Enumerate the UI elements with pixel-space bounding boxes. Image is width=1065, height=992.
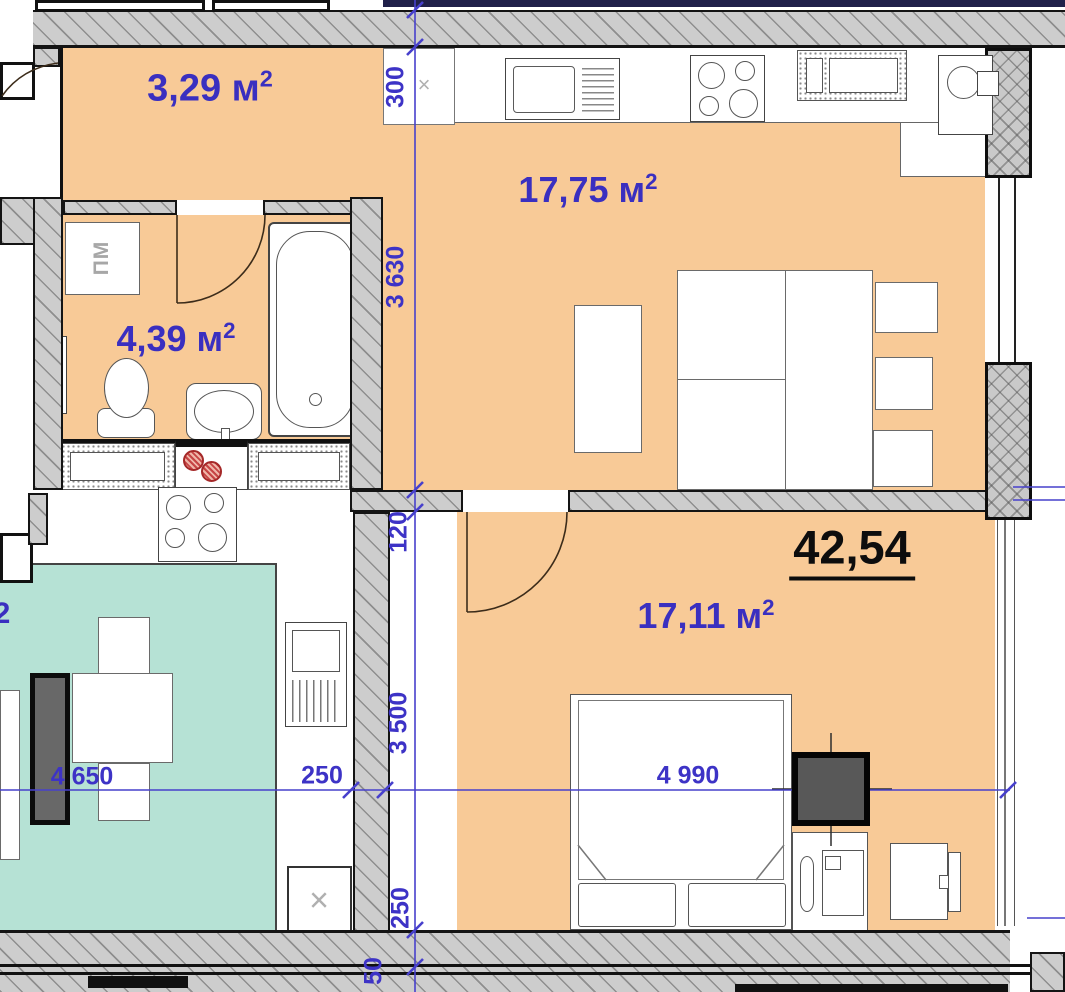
bed-pillow xyxy=(688,883,786,927)
living-bedroom-wall-left xyxy=(350,490,463,512)
coffee-table xyxy=(574,305,642,453)
neighbor-stove-burner xyxy=(165,528,185,548)
floorplan-canvas: 3,29 м2 17,75 м2 4,39 м2 17,11 м2 2 42,5… xyxy=(0,0,1065,992)
sofa-pillow xyxy=(875,282,938,333)
neighbor-hob-burner xyxy=(201,461,222,482)
bathroom-left-wall xyxy=(33,197,63,490)
desk-chair-back xyxy=(948,852,961,912)
sofa-bed-mattress xyxy=(785,270,873,490)
right-wall-pier-mid xyxy=(985,362,1032,520)
stove-burner xyxy=(735,61,755,81)
kitchen-sink-drainer xyxy=(582,68,614,114)
sofa-bed-cushion xyxy=(677,270,787,381)
kitchen-fridge-inner xyxy=(806,58,823,93)
kitchen-fridge-inner xyxy=(829,58,898,93)
washing-machine-label: ПМ xyxy=(90,241,114,276)
left-wall-stub xyxy=(33,47,60,67)
bottom-black-bar xyxy=(735,984,1008,992)
bathroom-sink-basin xyxy=(194,390,254,433)
neighbor-partial-label: 2 xyxy=(0,597,10,631)
dim-50: 50 xyxy=(360,957,389,985)
neighbor-furniture xyxy=(0,690,20,860)
dark-cabinet xyxy=(30,673,70,825)
dim-250-h: 250 xyxy=(301,762,343,791)
top-exterior-wall xyxy=(33,10,1065,48)
neighbor-stove-burner xyxy=(204,493,224,513)
neighbor-counter-inner xyxy=(70,452,165,481)
corridor-door-louvers xyxy=(292,680,340,722)
dim-4650: 4 650 xyxy=(51,763,114,792)
ventilation-shaft xyxy=(792,752,870,826)
neighbor-stove-burner xyxy=(198,523,227,552)
bathroom-right-wall xyxy=(350,197,383,490)
neighbor-stove-burner xyxy=(166,495,191,520)
bottom-double-line xyxy=(0,972,1065,975)
shaft-mark: × xyxy=(309,882,329,921)
sofa-bed-cushion xyxy=(677,379,787,490)
stove-burner xyxy=(699,96,719,116)
bedroom-area-label: 17,11 м2 xyxy=(637,595,774,637)
bedroom-window-inner-line xyxy=(1004,520,1006,926)
dim-300: 300 xyxy=(382,66,411,108)
bottom-double-line xyxy=(0,964,1065,967)
dining-table xyxy=(72,673,173,763)
bottom-black-bar xyxy=(88,976,188,988)
desk-chair-seat xyxy=(939,875,949,889)
kitchen-vent-mark: × xyxy=(418,72,431,98)
kitchen-sink-basin xyxy=(513,66,575,113)
dim-3500: 3 500 xyxy=(385,692,414,755)
bathtub-drain xyxy=(309,393,322,406)
dining-chair xyxy=(98,617,150,675)
toilet-bowl xyxy=(104,358,149,418)
bottom-right-stub xyxy=(1030,952,1065,992)
kitchen-boiler-drum xyxy=(947,66,980,99)
living-bedroom-wall-right xyxy=(568,490,990,512)
top-window-band xyxy=(383,0,1065,7)
neighbor-counter-inner xyxy=(258,452,340,481)
bathroom-top-wall-left xyxy=(63,200,177,215)
neighbor-left-window xyxy=(0,62,35,100)
corridor-door-glass xyxy=(292,630,340,672)
bedroom-window xyxy=(997,520,1015,926)
dim-3630: 3 630 xyxy=(382,246,411,309)
sofa-pillow xyxy=(873,430,933,487)
total-area-label: 42,54 xyxy=(789,520,915,581)
bedside-speaker xyxy=(800,856,814,912)
bathroom-area-label: 4,39 м2 xyxy=(116,318,235,360)
neighbor-upper-window xyxy=(212,0,330,12)
sofa-pillow xyxy=(875,357,933,410)
kitchen-boiler-pipe xyxy=(977,71,999,96)
kitchen-living-area-label: 17,75 м2 xyxy=(518,169,657,211)
balcony-area-label: 3,29 м2 xyxy=(147,66,273,111)
bed-pillow xyxy=(578,883,676,927)
stove-burner xyxy=(698,62,725,89)
dim-120: 120 xyxy=(385,511,414,553)
balcony-left-wall-line xyxy=(60,47,63,197)
dim-250-v: 250 xyxy=(387,887,416,929)
neighbor-upper-window xyxy=(35,0,205,12)
left-wall-stub2 xyxy=(28,493,48,545)
dim-4990: 4 990 xyxy=(657,762,720,791)
bedside-pc-detail xyxy=(825,856,841,870)
right-window-top xyxy=(998,178,1016,362)
stove-burner xyxy=(729,89,758,118)
